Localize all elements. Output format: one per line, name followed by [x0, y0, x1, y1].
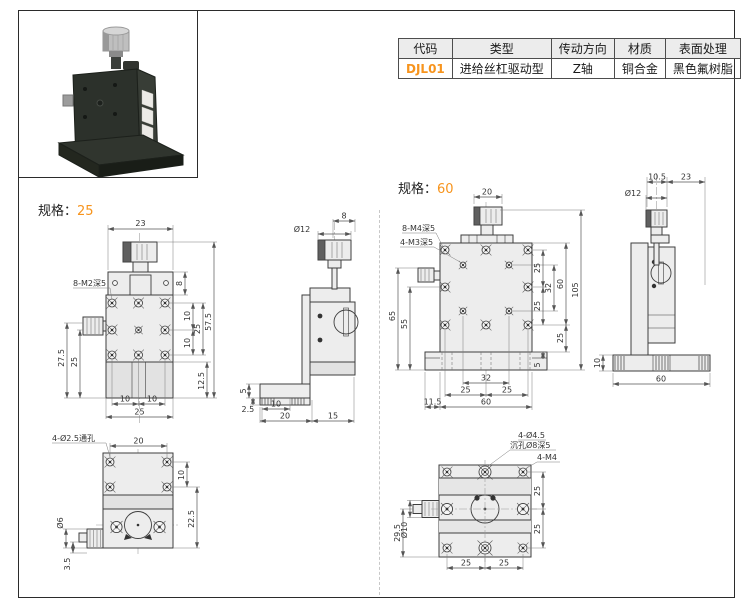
header-code: 代码 — [399, 39, 453, 59]
note-4-dia4-5: 4-Ø4.5 — [518, 430, 545, 440]
dim-11-5: 11.5 — [424, 398, 442, 407]
hole-pattern — [107, 298, 171, 361]
structure — [613, 210, 710, 371]
dim-25l: 25 — [70, 357, 79, 367]
dim-105: 105 — [571, 282, 580, 297]
dim-dia6: Ø6 — [55, 517, 65, 528]
dim-10: 10 — [593, 358, 602, 368]
dim-5: 5 — [533, 362, 542, 367]
note-counterbore: 沉孔Ø8深5 — [510, 440, 550, 450]
dim-25d: 25 — [499, 559, 509, 568]
cell-finish: 黑色氟树脂 — [665, 59, 740, 79]
spec60-front-view: 8-M4深5 4-M3深5 20 25 25 32 60 105 25 5 65… — [390, 182, 595, 427]
header-finish: 表面处理 — [665, 39, 740, 59]
product-photo — [19, 11, 197, 177]
spec60-side-view: 10.5 23 Ø12 10 60 — [595, 165, 735, 405]
product-photo-box — [18, 10, 198, 178]
spec25-side-view: 8 Ø12 5 2.5 10 20 15 — [240, 212, 380, 444]
cell-type: 进给丝杠驱动型 — [452, 59, 551, 79]
dim-25b: 25 — [533, 301, 542, 311]
dim-20: 20 — [133, 437, 143, 446]
dim-12-5: 12.5 — [197, 372, 206, 390]
dim-2-5: 2.5 — [242, 405, 255, 414]
photo-base — [59, 135, 183, 177]
dim-3-5: 3.5 — [63, 558, 72, 571]
header-direction: 传动方向 — [551, 39, 614, 59]
dim-25d: 25 — [460, 386, 470, 395]
spec-table-header-row: 代码 类型 传动方向 材质 表面处理 — [399, 39, 741, 59]
dim-10-5: 10.5 — [648, 173, 666, 182]
photo-knob — [103, 27, 139, 70]
dim-25a: 25 — [533, 486, 542, 496]
callout: 4-Ø2.5通孔 — [52, 433, 110, 457]
dim-25e: 25 — [502, 386, 512, 395]
dim-23: 23 — [681, 173, 691, 182]
dim-29-5: 29.5 — [393, 524, 402, 542]
spec25-front-view: 8-M2深5 23 8 10 10 25 12.5 57.5 27.5 25 1… — [30, 215, 245, 430]
structure — [413, 465, 531, 557]
spec-table: 代码 类型 传动方向 材质 表面处理 DJL01 进给丝杠驱动型 Z轴 铜合金 … — [398, 38, 741, 79]
dim-25c: 25 — [461, 559, 471, 568]
note-4-dia2-5: 4-Ø2.5通孔 — [52, 433, 95, 443]
dim-8: 8 — [175, 281, 184, 286]
dim-22-5: 22.5 — [187, 510, 196, 528]
note-8-M2: 8-M2深5 — [73, 279, 106, 288]
dim-15: 15 — [328, 412, 338, 421]
side-knob — [418, 268, 434, 282]
dim-25b: 25 — [134, 408, 144, 417]
dim-32r: 32 — [544, 283, 553, 293]
dim-10: 10 — [271, 400, 281, 409]
dim-60b: 60 — [481, 398, 491, 407]
dim-57-5: 57.5 — [204, 313, 213, 331]
dim-65: 65 — [388, 311, 397, 321]
dim-8: 8 — [341, 212, 346, 221]
dim-20: 20 — [482, 188, 492, 197]
header-type: 类型 — [452, 39, 551, 59]
cell-direction: Z轴 — [551, 59, 614, 79]
dim-60: 60 — [656, 375, 666, 384]
structure — [260, 240, 358, 405]
dim-10c: 10 — [120, 395, 130, 404]
dim-10b: 10 — [183, 338, 192, 348]
dim-27-5: 27.5 — [57, 349, 66, 367]
note-4-M3: 4-M3深5 — [400, 238, 433, 247]
structure — [79, 453, 173, 548]
callouts: 4-Ø4.5 沉孔Ø8深5 4-M4 — [487, 430, 560, 469]
spec25-bottom-view: 4-Ø2.5通孔 20 10 22.5 Ø6 3.5 — [30, 430, 220, 595]
dim-25r: 25 — [193, 324, 202, 334]
note-8-M4: 8-M4深5 — [402, 224, 435, 233]
dim-dia12: Ø12 — [625, 188, 641, 198]
dim-5: 5 — [239, 388, 248, 393]
dim-10d: 10 — [147, 395, 157, 404]
dim-20: 20 — [280, 412, 290, 421]
dim-10: 10 — [177, 470, 186, 480]
structure — [83, 242, 173, 398]
note-4-M4: 4-M4 — [537, 453, 557, 462]
side-knob — [83, 317, 103, 335]
cell-code: DJL01 — [399, 59, 453, 79]
dim-25c: 25 — [556, 333, 565, 343]
photo-side-knob — [63, 95, 73, 106]
dim-60r: 60 — [556, 279, 565, 289]
cell-material: 铜合金 — [614, 59, 665, 79]
dim-23: 23 — [135, 219, 145, 228]
header-material: 材质 — [614, 39, 665, 59]
dim-dia12: Ø12 — [294, 224, 310, 234]
dim-25a: 25 — [533, 263, 542, 273]
spec60-bottom-view: 4-Ø4.5 沉孔Ø8深5 4-M4 25 25 25 25 Ø10 29.5 — [398, 430, 600, 595]
dim-55: 55 — [400, 319, 409, 329]
spec-table-value-row: DJL01 进给丝杠驱动型 Z轴 铜合金 黑色氟树脂 — [399, 59, 741, 79]
dim-25b: 25 — [533, 524, 542, 534]
dim-10a: 10 — [183, 311, 192, 321]
